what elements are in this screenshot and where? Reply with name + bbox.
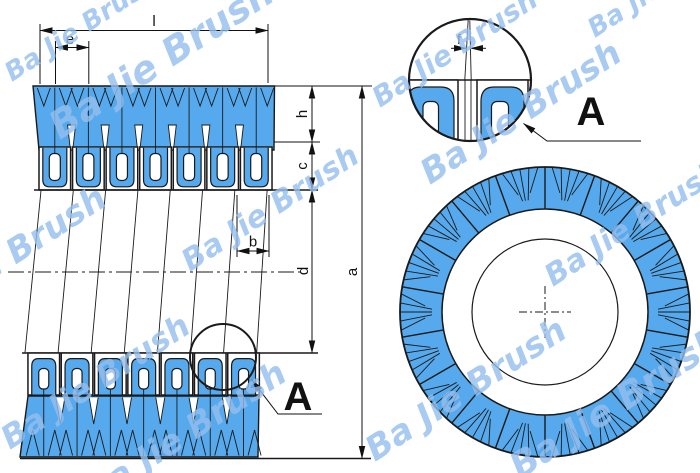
anchor-slot: [49, 154, 60, 181]
anchor-slot: [251, 154, 262, 181]
anchor-slot: [150, 154, 161, 181]
watermark-text: Ba Jie Brush: [582, 0, 700, 44]
anchor-slot: [116, 154, 127, 181]
brush-roller-technical-drawing: A l e h c d a b: [0, 0, 700, 473]
dim-label-d: d: [295, 267, 312, 275]
dim-label-l: l: [152, 13, 155, 30]
anchor-slot: [83, 154, 94, 181]
dim-label-a: a: [344, 267, 361, 276]
anchor-slot: [217, 154, 228, 181]
anchor-slot: [39, 369, 49, 390]
anchor-slot: [172, 369, 182, 390]
anchor-slot: [184, 154, 195, 181]
watermark-text: Ba Jie Brush: [0, 178, 114, 337]
dim-label-h: h: [294, 110, 311, 118]
